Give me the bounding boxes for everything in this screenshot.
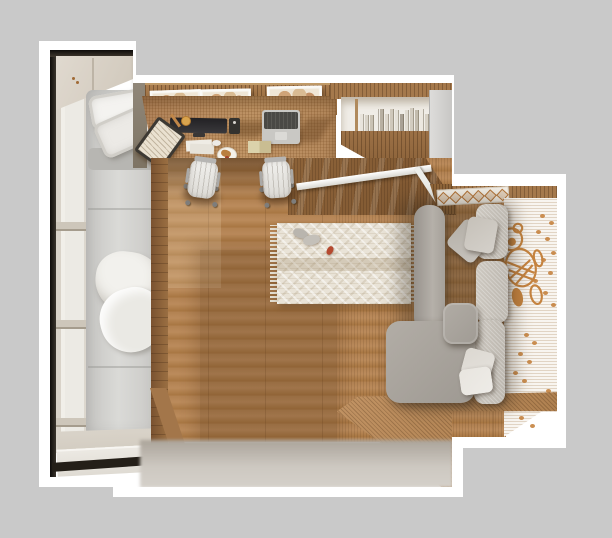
- book-spine: [405, 110, 409, 131]
- chair-caster: [291, 199, 296, 204]
- apartment-top-view-render: [0, 0, 612, 538]
- wallpaper-dot: [530, 424, 535, 428]
- wallpaper-dot: [532, 341, 537, 345]
- book-spine: [365, 115, 369, 131]
- chair-seat: [261, 159, 292, 199]
- book-spine: [420, 109, 424, 131]
- wallpaper-dot: [548, 271, 553, 275]
- wallpaper-dot: [545, 237, 550, 241]
- book-spine: [370, 115, 374, 131]
- chair-caster: [264, 203, 269, 208]
- desk-candle: [181, 116, 191, 126]
- wallpaper-dot: [536, 230, 541, 234]
- chair-caster: [212, 202, 218, 208]
- computer-mouse: [212, 140, 221, 146]
- wallpaper-dot: [527, 360, 532, 364]
- book-spine: [395, 110, 399, 131]
- window-frame-left: [50, 50, 56, 478]
- wallpaper-dot: [518, 352, 523, 356]
- rug-center-band: [277, 258, 411, 271]
- sofa-backrest: [414, 205, 445, 332]
- window-bar: [56, 222, 90, 231]
- sofa-cushion: [476, 261, 508, 323]
- chair-armrest: [216, 172, 221, 187]
- book-spine: [400, 114, 404, 131]
- laptop: [262, 110, 300, 144]
- balcony-window-strip: [56, 57, 90, 453]
- window-bar: [56, 320, 90, 329]
- sofa-ottoman: [443, 303, 478, 344]
- wallpaper-dot: [551, 303, 556, 307]
- book-spine: [410, 108, 414, 131]
- mattress-seam: [88, 208, 156, 210]
- book-spine: [375, 109, 379, 131]
- book-spine: [415, 110, 419, 131]
- laptop-keyboard: [264, 112, 298, 129]
- mattress-seam: [88, 366, 156, 368]
- wallpaper-dot: [540, 214, 545, 218]
- wallpaper-dot: [519, 416, 524, 420]
- book-spine: [380, 109, 384, 131]
- office-chair: [179, 157, 225, 210]
- chair-seat: [186, 158, 219, 200]
- speaker-dot: [233, 121, 236, 124]
- sofa-pillow: [463, 216, 498, 255]
- office-chair: [255, 159, 298, 210]
- wardrobe-knob: [72, 77, 75, 80]
- wallpaper-dot: [551, 251, 556, 255]
- rug-fringe-left: [270, 225, 277, 302]
- chair-caster: [185, 200, 191, 206]
- book-spine: [385, 114, 389, 131]
- wallpaper-dot: [541, 258, 546, 262]
- sofa-pillow: [458, 366, 493, 396]
- wallpaper-dot: [522, 379, 527, 383]
- chair-armrest: [290, 169, 294, 184]
- wallpaper-dot: [543, 291, 548, 295]
- wardrobe-knob: [76, 81, 79, 84]
- shelf-divider: [355, 99, 358, 131]
- monitor-stand: [193, 133, 205, 137]
- window-frame-top: [50, 50, 136, 57]
- book-spine: [390, 109, 394, 131]
- window-bar: [56, 418, 90, 427]
- paper-sheet: [190, 144, 214, 155]
- wallpaper-dot: [549, 221, 554, 225]
- bottom-wall-blur: [140, 440, 453, 488]
- wallpaper-dot: [533, 279, 538, 283]
- laptop-trackpad: [275, 132, 287, 140]
- wallpaper-dot: [524, 333, 529, 337]
- open-notebook: [248, 141, 271, 153]
- book-spine: [360, 114, 364, 131]
